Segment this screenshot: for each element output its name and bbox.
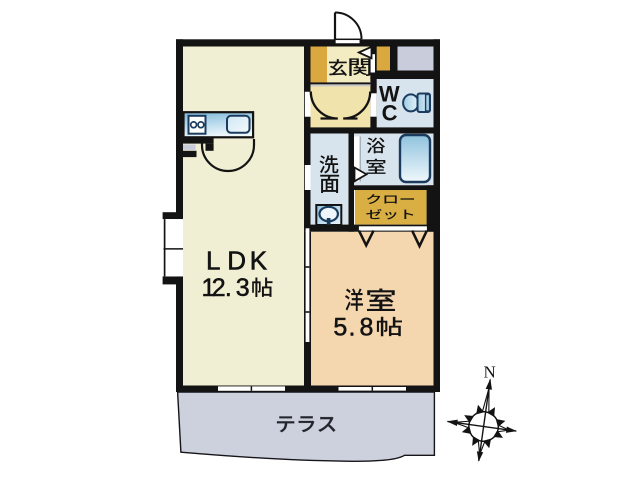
svg-text:2: 2 [212,274,226,302]
svg-text:.: . [225,274,232,302]
svg-text:.: . [349,313,356,341]
svg-text:3: 3 [236,274,250,302]
svg-text:5: 5 [333,313,347,341]
svg-text:C: C [382,101,398,126]
svg-text:N: N [484,362,496,381]
svg-text:D: D [227,245,246,275]
svg-text:L: L [206,245,220,275]
svg-text:8: 8 [360,313,374,341]
svg-text:K: K [250,245,268,275]
